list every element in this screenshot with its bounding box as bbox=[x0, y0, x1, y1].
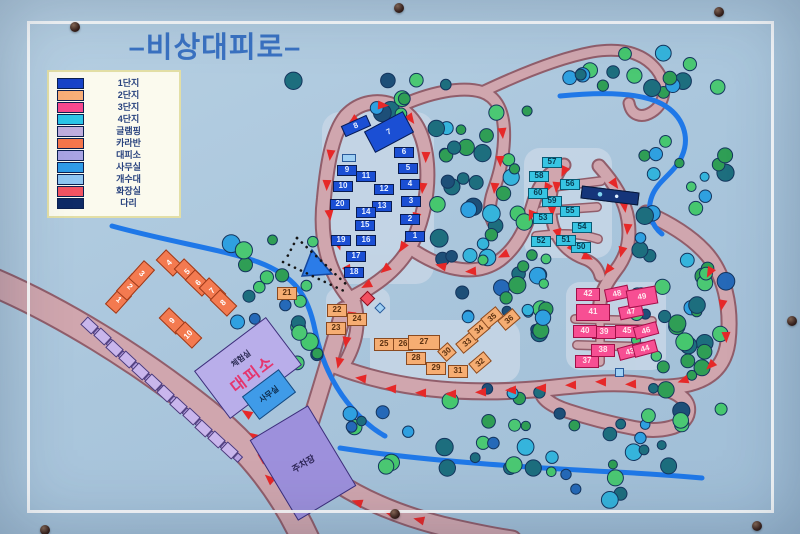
building-z4-58: 58 bbox=[529, 171, 549, 182]
legend-swatch bbox=[57, 126, 84, 137]
screw bbox=[40, 525, 50, 534]
building-z1-10: 10 bbox=[333, 181, 353, 192]
sink-marker bbox=[342, 154, 356, 162]
building-z3-49: 49 bbox=[626, 286, 659, 309]
building-z2-28: 28 bbox=[406, 352, 426, 365]
building-z4-55: 55 bbox=[560, 206, 580, 217]
building-z1-6: 6 bbox=[394, 147, 414, 158]
sign-photo: 체험실 대피소 사무실 주차장 123456789101112131415161… bbox=[0, 0, 800, 534]
sink-marker bbox=[615, 368, 624, 377]
legend-swatch bbox=[57, 174, 84, 185]
building-z4-57: 57 bbox=[542, 157, 562, 168]
building-z2-32: 32 bbox=[468, 351, 492, 374]
sink-marker bbox=[374, 302, 385, 313]
building-z1-1: 1 bbox=[405, 231, 425, 242]
legend-label: 1단지 bbox=[84, 79, 173, 88]
legend-swatch bbox=[57, 198, 84, 209]
legend-row-3단지: 3단지 bbox=[55, 101, 173, 113]
legend-swatch bbox=[57, 114, 84, 125]
building-z4-51: 51 bbox=[556, 235, 576, 246]
legend-label: 2단지 bbox=[84, 91, 173, 100]
building-z2-36: 36 bbox=[497, 308, 521, 331]
building-z2-30: 30 bbox=[437, 342, 457, 362]
building-z2-29: 29 bbox=[426, 362, 446, 375]
screw bbox=[70, 22, 80, 32]
building-z3-41: 41 bbox=[576, 304, 610, 321]
legend-row-카라반: 카라반 bbox=[55, 137, 173, 149]
building-z4-54: 54 bbox=[572, 222, 592, 233]
building-z2-31: 31 bbox=[448, 365, 468, 378]
legend-label: 카라반 bbox=[84, 139, 173, 148]
building-z1-18: 18 bbox=[344, 267, 364, 278]
toilet-marker bbox=[360, 291, 376, 307]
building-z1-20: 20 bbox=[330, 199, 350, 210]
legend-label: 개수대 bbox=[84, 175, 173, 184]
legend-row-4단지: 4단지 bbox=[55, 113, 173, 125]
building-z2-22: 22 bbox=[327, 304, 347, 317]
building-z2-24: 24 bbox=[347, 313, 367, 326]
legend-label: 글램핑 bbox=[84, 127, 173, 136]
building-z1-9: 9 bbox=[337, 165, 357, 176]
bridge-marker bbox=[580, 186, 639, 206]
building-z3-40: 40 bbox=[573, 325, 597, 338]
building-z2-23: 23 bbox=[326, 322, 346, 335]
legend-row-글램핑: 글램핑 bbox=[55, 125, 173, 137]
sign-title: –비상대피로– bbox=[90, 24, 340, 66]
legend: 1단지2단지3단지4단지글램핑카라반대피소사무실개수대화장실다리 bbox=[47, 70, 181, 218]
building-z3-42: 42 bbox=[576, 288, 600, 301]
legend-row-화장실: 화장실 bbox=[55, 186, 173, 198]
legend-label: 3단지 bbox=[84, 103, 173, 112]
legend-row-2단지: 2단지 bbox=[55, 89, 173, 101]
screw bbox=[714, 7, 724, 17]
building-z4-53: 53 bbox=[533, 213, 553, 224]
legend-label: 화장실 bbox=[84, 187, 173, 196]
building-z3-44: 44 bbox=[632, 339, 659, 358]
legend-swatch bbox=[57, 90, 84, 101]
building-z1-3: 3 bbox=[401, 196, 421, 207]
screw bbox=[752, 521, 762, 531]
building-z1-17: 17 bbox=[346, 251, 366, 262]
building-z1-5: 5 bbox=[398, 163, 418, 174]
legend-row-개수대: 개수대 bbox=[55, 174, 173, 186]
legend-swatch bbox=[57, 186, 84, 197]
legend-label: 사무실 bbox=[84, 163, 173, 172]
building-z3-38: 38 bbox=[591, 344, 615, 357]
building-z4-52: 52 bbox=[531, 236, 551, 247]
legend-swatch bbox=[57, 138, 84, 149]
legend-label: 다리 bbox=[84, 199, 173, 208]
building-z1-2: 2 bbox=[400, 214, 420, 225]
screw bbox=[787, 316, 797, 326]
building-z2-21: 21 bbox=[277, 287, 297, 300]
building-z2-25: 25 bbox=[374, 338, 394, 351]
building-z3-46: 46 bbox=[633, 321, 660, 340]
legend-row-사무실: 사무실 bbox=[55, 162, 173, 174]
building-z2-27: 27 bbox=[408, 335, 440, 350]
legend-swatch bbox=[57, 102, 84, 113]
legend-row-대피소: 대피소 bbox=[55, 150, 173, 162]
building-z4-56: 56 bbox=[560, 179, 580, 190]
legend-swatch bbox=[57, 162, 84, 173]
legend-swatch bbox=[57, 150, 84, 161]
building-z1-12: 12 bbox=[374, 184, 394, 195]
screw bbox=[394, 3, 404, 13]
building-z4-60: 60 bbox=[528, 188, 548, 199]
screw bbox=[390, 509, 400, 519]
parking-lot: 주차장 bbox=[250, 405, 357, 521]
building-z1-14: 14 bbox=[356, 207, 376, 218]
legend-swatch bbox=[57, 78, 84, 89]
building-z1-19: 19 bbox=[331, 235, 351, 246]
building-z1-11: 11 bbox=[356, 171, 376, 182]
building-z1-16: 16 bbox=[356, 235, 376, 246]
legend-row-다리: 다리 bbox=[55, 198, 173, 210]
building-z1-15: 15 bbox=[355, 220, 375, 231]
legend-label: 대피소 bbox=[84, 151, 173, 160]
legend-row-1단지: 1단지 bbox=[55, 77, 173, 89]
legend-label: 4단지 bbox=[84, 115, 173, 124]
building-z1-4: 4 bbox=[400, 179, 420, 190]
